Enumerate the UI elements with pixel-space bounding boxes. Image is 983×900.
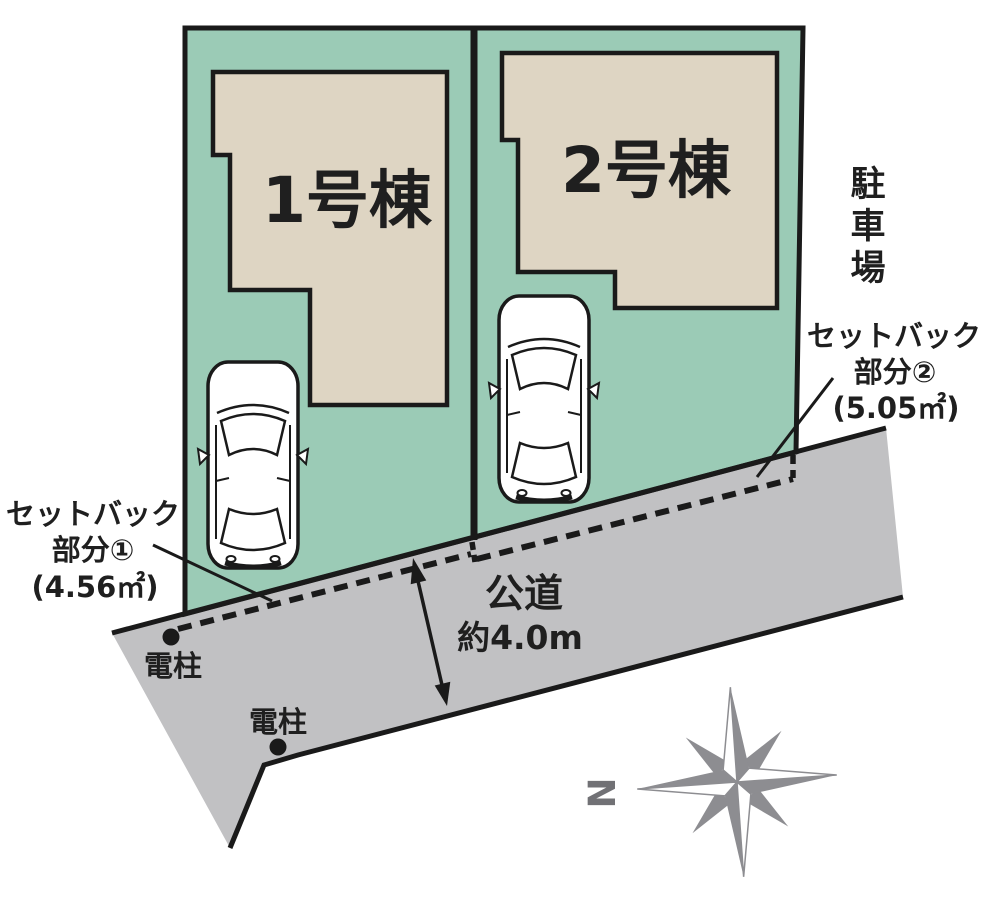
car-icon	[489, 296, 599, 502]
setback-1-line-2: 部分①	[52, 533, 135, 567]
setback-2-line-1: セットバック	[807, 319, 981, 353]
building-2-label: 2号棟	[561, 134, 732, 207]
setback-1-label: セットバック 部分① (4.56㎡)	[6, 497, 180, 604]
parking-char-3: 場	[850, 249, 885, 289]
building-1-label: 1号棟	[262, 164, 433, 237]
road-width-label: 約4.0m	[457, 618, 583, 657]
utility-pole-2-label: 電柱	[249, 705, 307, 739]
site-plan-drawing: 1号棟 2号棟 電柱 電柱 セットバック 部分① (4.56㎡) セットバック …	[0, 0, 983, 900]
setback-2-line-3: (5.05㎡)	[832, 391, 959, 425]
parking-char-1: 駐	[850, 165, 885, 205]
setback-2-line-2: 部分②	[854, 355, 937, 389]
utility-pole-dot	[270, 739, 287, 756]
compass-north-label: N	[581, 778, 624, 809]
setback-1-line-1: セットバック	[6, 497, 180, 531]
parking-label: 駐 車 場	[850, 165, 885, 289]
parking-char-2: 車	[850, 207, 885, 247]
car-icon	[198, 362, 308, 568]
site-plan: 1号棟 2号棟 電柱 電柱 セットバック 部分① (4.56㎡) セットバック …	[0, 0, 983, 900]
setback-1-line-3: (4.56㎡)	[31, 570, 158, 604]
compass-rose-icon	[631, 680, 844, 883]
road-name-label: 公道	[485, 572, 563, 617]
setback-2-label: セットバック 部分② (5.05㎡)	[807, 319, 981, 425]
utility-pole-1-label: 電柱	[144, 649, 202, 683]
utility-pole-dot	[163, 629, 180, 646]
